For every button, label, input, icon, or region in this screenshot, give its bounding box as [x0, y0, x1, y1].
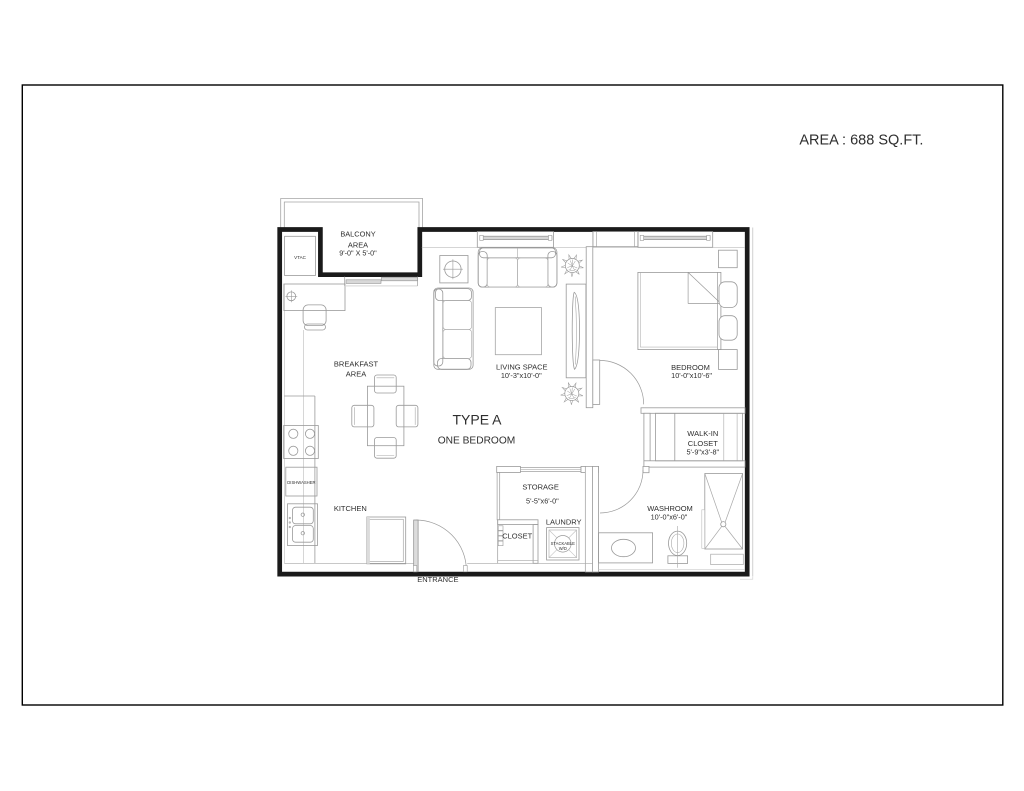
svg-text:BALCONY: BALCONY — [340, 230, 375, 239]
svg-text:10'-0"x10'-6": 10'-0"x10'-6" — [671, 371, 712, 380]
svg-text:DISHWASHER: DISHWASHER — [287, 480, 315, 485]
svg-text:ENTRANCE: ENTRANCE — [417, 575, 458, 584]
svg-text:AREA : 688 SQ.FT.: AREA : 688 SQ.FT. — [799, 133, 923, 149]
svg-text:LAUNDRY: LAUNDRY — [546, 517, 582, 526]
svg-text:VTAC: VTAC — [294, 255, 306, 260]
svg-text:BREAKFAST: BREAKFAST — [334, 360, 379, 369]
svg-text:STORAGE: STORAGE — [522, 483, 559, 492]
svg-text:AREA: AREA — [346, 370, 366, 379]
svg-text:WASHROOM: WASHROOM — [647, 504, 693, 513]
svg-text:5'-9"x3'-8": 5'-9"x3'-8" — [686, 448, 719, 457]
svg-text:10'-3"x10'-0": 10'-3"x10'-0" — [501, 371, 542, 380]
svg-text:10'-0"x6'-0": 10'-0"x6'-0" — [651, 513, 688, 522]
svg-text:TYPE A: TYPE A — [452, 412, 502, 428]
svg-text:5'-5"x6'-0": 5'-5"x6'-0" — [526, 497, 559, 506]
svg-text:ONE BEDROOM: ONE BEDROOM — [438, 435, 516, 446]
svg-text:KITCHEN: KITCHEN — [334, 504, 367, 513]
svg-text:W/D: W/D — [559, 546, 567, 551]
svg-text:CLOSET: CLOSET — [502, 531, 532, 540]
svg-text:9'-0" X 5'-0": 9'-0" X 5'-0" — [339, 249, 377, 258]
svg-text:WALK-IN: WALK-IN — [687, 429, 718, 438]
